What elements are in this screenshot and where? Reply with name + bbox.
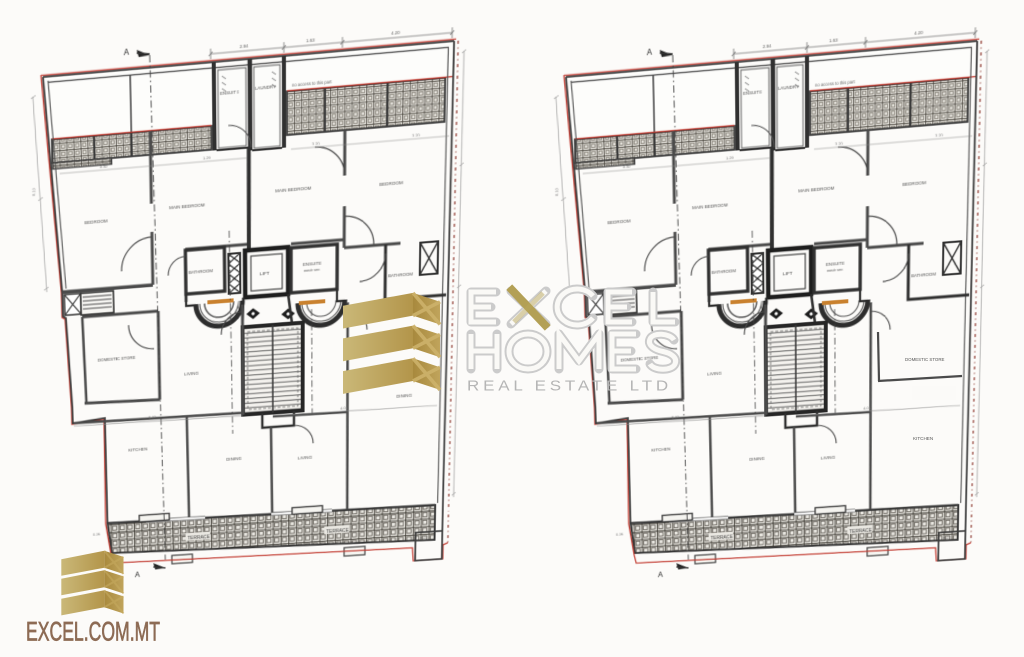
svg-text:REAL ESTATE LTD: REAL ESTATE LTD	[467, 378, 672, 395]
svg-text:KITCHEN: KITCHEN	[913, 436, 933, 441]
svg-text:EXCEL.COM.MT: EXCEL.COM.MT	[26, 617, 160, 647]
svg-text:DOMESTIC STORE: DOMESTIC STORE	[905, 357, 945, 362]
